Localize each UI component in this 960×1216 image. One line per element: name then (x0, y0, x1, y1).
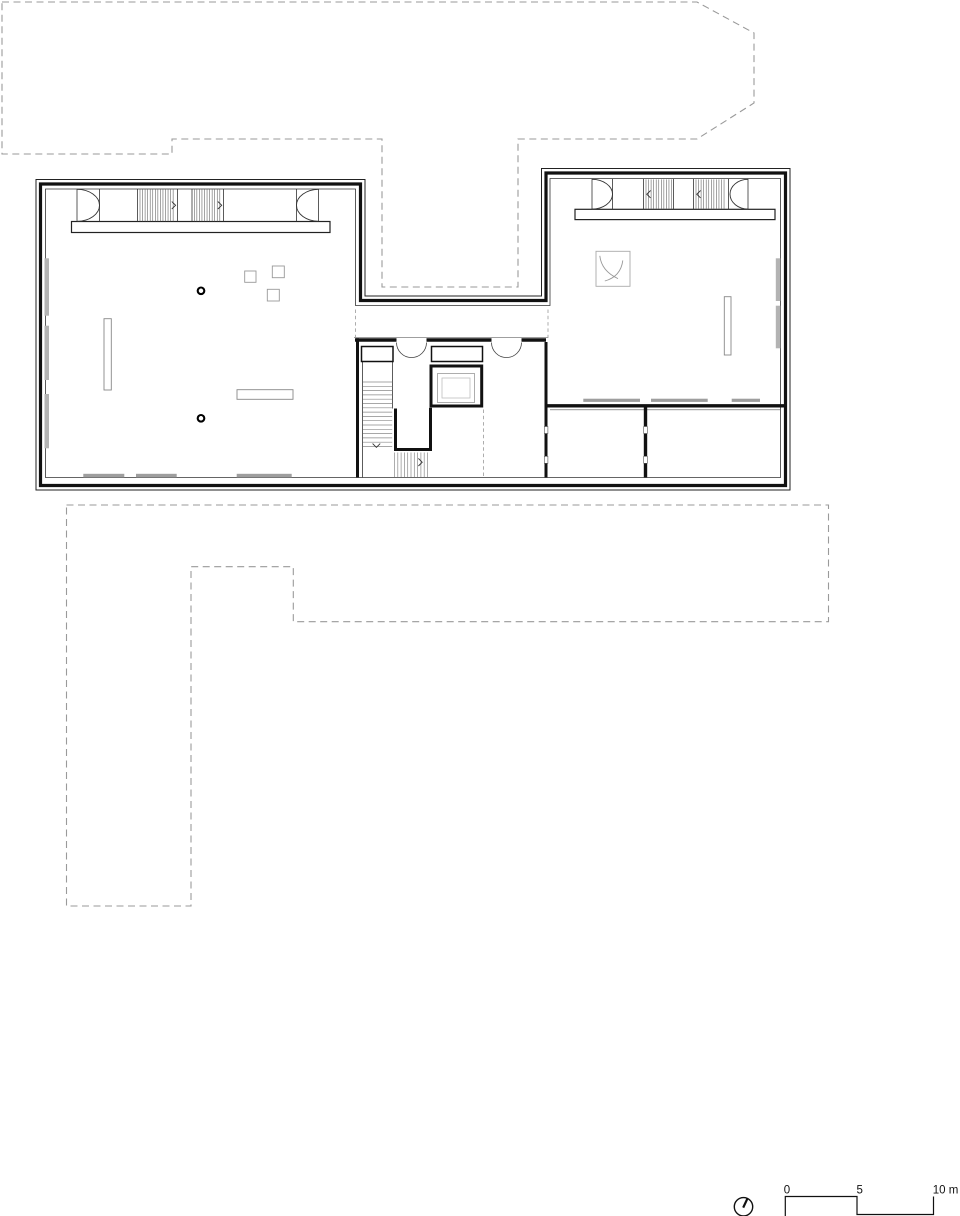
bench-right-wing (724, 297, 731, 355)
floor-threshold (583, 399, 640, 402)
door-jamb-mark (644, 427, 648, 434)
floor-threshold (651, 399, 708, 402)
scale-label-10m: 10 m (933, 1185, 959, 1197)
column-symbol (198, 288, 205, 295)
floor-threshold (237, 474, 292, 478)
wall-niche (776, 258, 781, 301)
elevator-shaft (431, 366, 482, 406)
floor-plan-page: 0510 m (0, 0, 960, 1216)
scale-label-0: 0 (784, 1185, 790, 1197)
wall-niche (45, 326, 50, 380)
scale-bar (785, 1197, 933, 1216)
wall-niche (45, 394, 50, 448)
door-jamb-mark (544, 427, 548, 434)
floor-threshold (732, 399, 760, 402)
column-symbol (198, 415, 205, 422)
floor-plan-svg: 0510 m (0, 0, 960, 1216)
core-closet-middle (432, 347, 483, 362)
wardrobe-counter-left-wing (72, 222, 331, 233)
wall-niche (45, 258, 50, 315)
floor-threshold (136, 474, 177, 478)
core-closet-left (362, 347, 394, 362)
bench-horizontal (237, 390, 293, 400)
site-outline-lower-dashed (67, 505, 829, 906)
wardrobe-counter-right-wing (575, 209, 775, 219)
bench-vertical (104, 319, 111, 390)
door-jamb-mark (544, 456, 548, 463)
door-jamb-mark (644, 456, 648, 463)
scale-label-5: 5 (856, 1185, 862, 1197)
wall-niche (776, 306, 781, 349)
floor-threshold (83, 474, 124, 478)
